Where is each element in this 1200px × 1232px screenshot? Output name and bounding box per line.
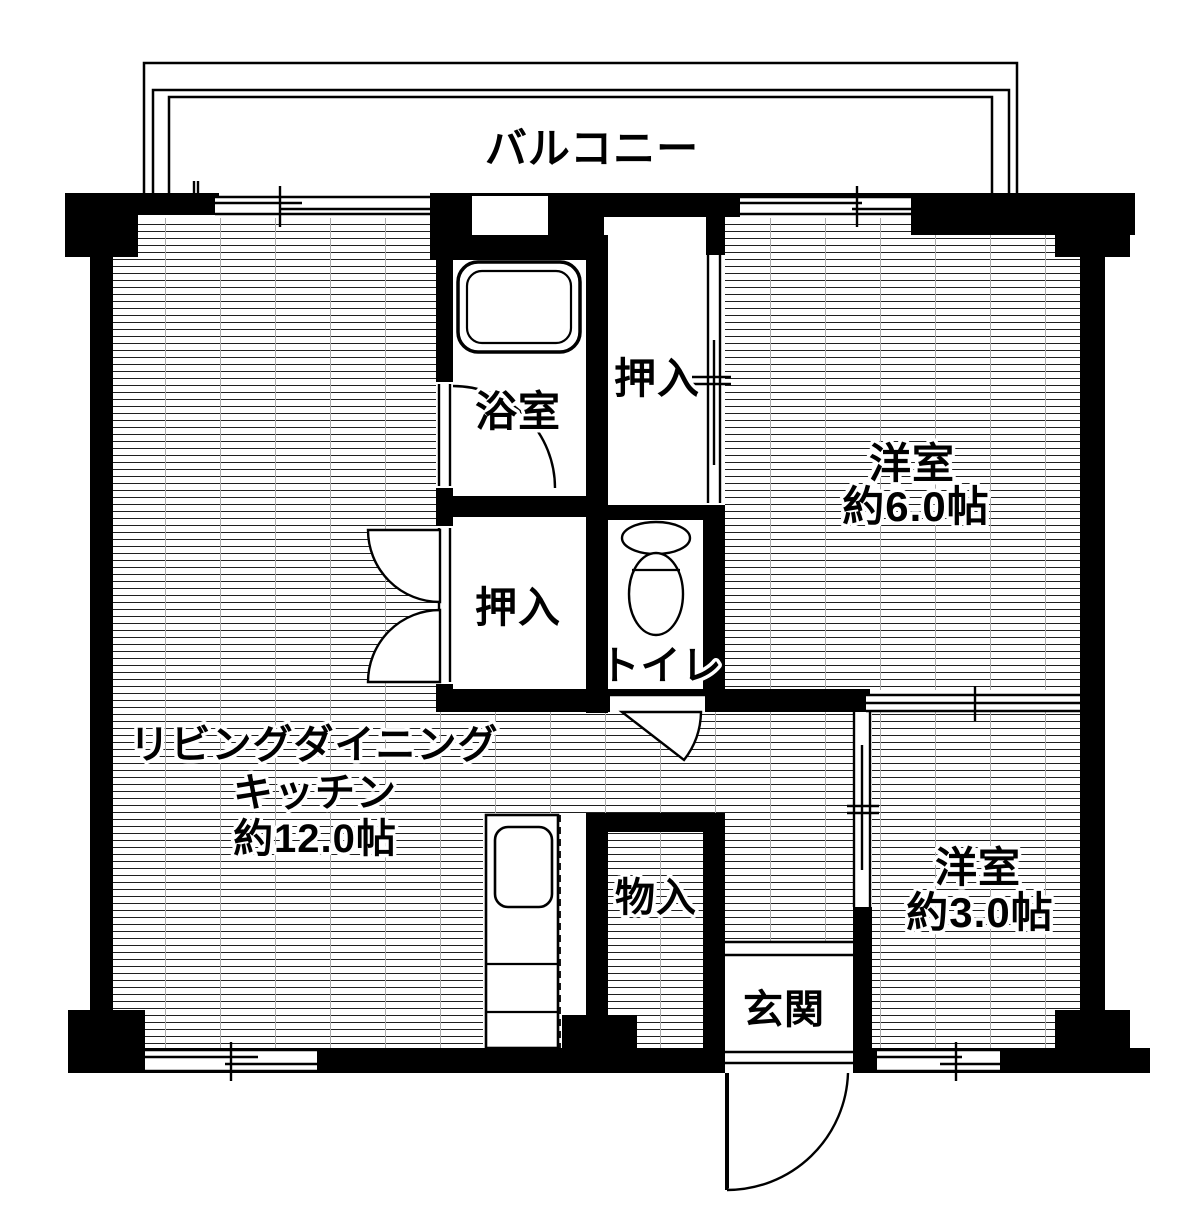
western3-window-band [877, 1050, 1000, 1071]
floorplan-svg: バルコニー 浴室 押入 押入 トイレ 洋室 約6.0帖 リビングダイニング キッ… [0, 0, 1200, 1232]
western3-size: 約3.0帖 [906, 889, 1053, 936]
western6-window-band [740, 198, 911, 215]
toilet-door-opening [610, 694, 705, 712]
kitchen-sink-icon [495, 827, 552, 907]
bathtub-inner [467, 271, 571, 343]
bathroom-label: 浴室 [475, 388, 561, 435]
western3-label: 洋室 [935, 844, 1021, 891]
toilet-tank [622, 522, 690, 554]
closet-lower-label: 押入 [475, 584, 561, 631]
toilet-icon [629, 553, 683, 635]
balcony-label: バルコニー [485, 125, 699, 172]
entrance-label: 玄関 [743, 988, 825, 1032]
ldk-label-line2: キッチン [233, 771, 397, 815]
ldk-label-line3: 約12.0帖 [233, 817, 397, 861]
western6-label: 洋室 [869, 440, 955, 487]
closet-upper-label: 押入 [614, 355, 700, 402]
wall-recess [472, 196, 548, 235]
western6-size: 約6.0帖 [842, 483, 989, 530]
floorplan-canvas: バルコニー 浴室 押入 押入 トイレ 洋室 約6.0帖 リビングダイニング キッ… [0, 0, 1200, 1232]
ldk-label-line1: リビングダイニング [130, 723, 499, 767]
ldk-balcony-window-band [215, 196, 430, 215]
toilet-label: トイレ [600, 644, 723, 688]
storage-label: 物入 [615, 876, 697, 920]
